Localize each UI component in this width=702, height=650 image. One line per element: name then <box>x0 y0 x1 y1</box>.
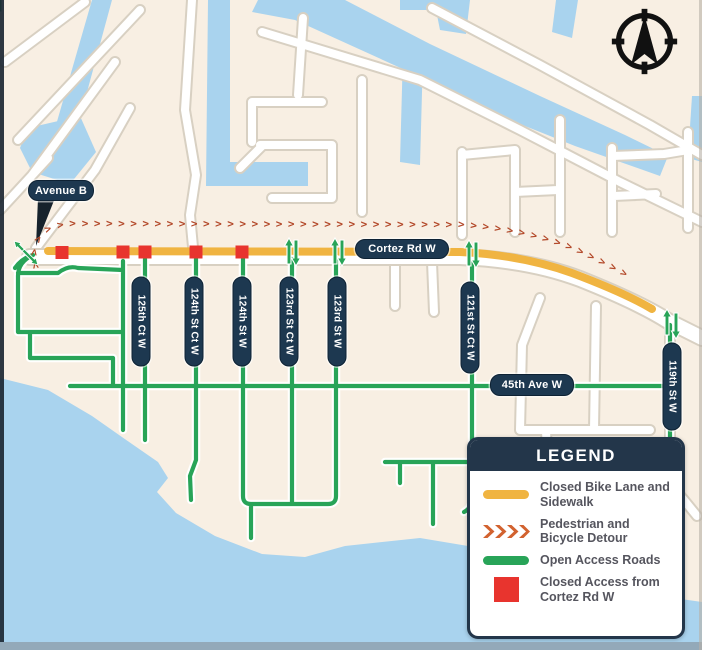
legend: LEGEND Closed Bike Lane and Sidewalk <box>467 437 685 639</box>
legend-item-label: Pedestrian and Bicycle Detour <box>540 517 672 547</box>
street-label-124th-st-w: 124th St W <box>233 276 252 366</box>
detour-chevrons-swatch-icon <box>482 524 530 539</box>
street-label-124th-st-ct-w: 124th St Ct W <box>185 276 204 366</box>
legend-title: LEGEND <box>470 440 682 471</box>
street-label-125th-ct-w: 125th Ct W <box>132 276 151 366</box>
legend-item: Closed Access from Cortez Rd W <box>482 575 672 605</box>
street-label-123rd-st-w: 123rd St W <box>328 276 347 366</box>
open-access-swatch-icon <box>483 556 529 565</box>
street-label-123rd-st-ct-w: 123rd St Ct W <box>280 276 299 366</box>
legend-item-label: Closed Bike Lane and Sidewalk <box>540 480 672 510</box>
detour-map: >>>>>>>>>>>>>>>>>>>>>>>>>>>>>>>>>>>>>>>>… <box>0 0 702 650</box>
map-edge-bottom <box>0 642 702 650</box>
map-edge-left <box>0 0 4 642</box>
compass-north-icon <box>608 5 681 78</box>
street-label-119th-st-w: 119th St W <box>663 342 682 430</box>
legend-item: Pedestrian and Bicycle Detour <box>482 517 672 547</box>
legend-item-label: Closed Access from Cortez Rd W <box>540 575 672 605</box>
street-label-121st-st-ct-w: 121st St Ct W <box>461 281 480 373</box>
road-label-avenue-b: Avenue B <box>28 180 94 201</box>
closed-access-swatch-icon <box>494 577 519 602</box>
legend-item: Closed Bike Lane and Sidewalk <box>482 480 672 510</box>
legend-item: Open Access Roads <box>482 553 672 568</box>
road-label-cortez: Cortez Rd W <box>355 239 449 259</box>
closed-bike-lane-swatch-icon <box>483 490 529 499</box>
road-label-45th-ave: 45th Ave W <box>490 374 574 396</box>
legend-item-label: Open Access Roads <box>540 553 660 568</box>
